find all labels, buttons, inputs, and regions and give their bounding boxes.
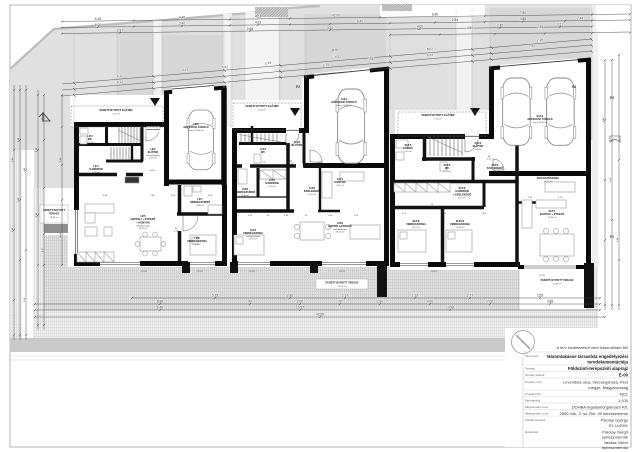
- svg-text:Projekt címe:: Projekt címe:: [525, 380, 543, 384]
- svg-text:9,74 m²: 9,74 m²: [249, 238, 257, 241]
- svg-text:4,20 m²: 4,20 m²: [268, 185, 276, 188]
- svg-text:Megrendelő címe:: Megrendelő címe:: [525, 412, 549, 416]
- svg-text:1,12: 1,12: [412, 294, 418, 298]
- svg-text:6,48: 6,48: [157, 306, 163, 310]
- svg-text:13,98: 13,98: [446, 306, 454, 310]
- svg-text:beton 19,96 m²: beton 19,96 m²: [337, 104, 352, 107]
- svg-text:2,19: 2,19: [265, 61, 272, 66]
- svg-text:6,43: 6,43: [427, 53, 434, 58]
- svg-text:+ KONYHA: + KONYHA: [136, 220, 150, 224]
- svg-text:17,80 m²: 17,80 m²: [548, 216, 557, 219]
- svg-text:F2: F2: [572, 85, 576, 89]
- svg-text:3,24: 3,24: [327, 26, 333, 30]
- svg-text:melegburkolat: melegburkolat: [136, 224, 150, 227]
- svg-text:3,40: 3,40: [179, 22, 185, 26]
- svg-text:6,40: 6,40: [357, 19, 363, 23]
- svg-text:38,37 m²: 38,37 m²: [139, 227, 148, 230]
- svg-text:18,88 m²: 18,88 m²: [50, 216, 59, 219]
- svg-text:7,32: 7,32: [529, 44, 536, 49]
- svg-text:melegburkolat: melegburkolat: [333, 228, 347, 231]
- svg-text:4,80 m²: 4,80 m²: [196, 204, 204, 207]
- svg-text:Méretarány:: Méretarány:: [525, 399, 541, 403]
- svg-text:2,17: 2,17: [342, 294, 348, 298]
- svg-text:3,21: 3,21: [557, 23, 563, 27]
- svg-text:Felelős tervező:: Felelős tervező:: [525, 418, 546, 422]
- svg-text:3,92: 3,92: [369, 57, 376, 62]
- svg-text:KONYHA: KONYHA: [334, 180, 345, 184]
- svg-text:4,03: 4,03: [255, 21, 261, 25]
- svg-text:2,97: 2,97: [117, 29, 123, 33]
- svg-text:FEDETT-NYITOTT TERASZ: FEDETT-NYITOTT TERASZ: [326, 281, 359, 285]
- svg-text:42,00: 42,00: [332, 14, 340, 18]
- svg-text:2,84: 2,84: [452, 18, 458, 22]
- svg-text:Építészek:: Építészek:: [525, 429, 539, 434]
- svg-text:melegburkolat: melegburkolat: [146, 154, 160, 157]
- svg-text:4,00: 4,00: [427, 300, 433, 304]
- svg-text:2600 Vác, 2. sz. Rkt. 50 keres: 2600 Vác, 2. sz. Rkt. 50 kereskedelme: [560, 411, 629, 416]
- svg-text:A terv kivitelezésre nem haszn: A terv kivitelezésre nem használható fel…: [556, 345, 629, 350]
- svg-text:6,13: 6,13: [117, 80, 124, 85]
- svg-text:építészmérnök: építészmérnök: [602, 435, 628, 440]
- svg-text:4,42: 4,42: [222, 65, 229, 70]
- svg-text:7,22 m²: 7,22 m²: [112, 113, 120, 116]
- svg-text:5,61 m²: 5,61 m²: [404, 150, 412, 153]
- svg-text:10,57: 10,57: [296, 306, 304, 310]
- svg-text:8,11 m²: 8,11 m²: [336, 184, 344, 187]
- svg-text:±0,00: ±0,00: [149, 170, 155, 172]
- svg-text:10,01 m²: 10,01 m²: [544, 180, 553, 183]
- svg-text:24,55 m²: 24,55 m²: [338, 285, 347, 288]
- svg-text:7,58 m²: 7,58 m²: [434, 118, 442, 121]
- svg-text:Tervlap:: Tervlap:: [525, 367, 536, 371]
- svg-text:0,68: 0,68: [247, 27, 253, 31]
- svg-text:2,44: 2,44: [577, 17, 583, 21]
- svg-text:DOHBA Ingatlanforgalmazó Kft.: DOHBA Ingatlanforgalmazó Kft.: [572, 405, 628, 410]
- svg-text:4,03: 4,03: [255, 15, 261, 19]
- svg-text:5,25: 5,25: [212, 294, 218, 298]
- svg-text:Palotay György: Palotay György: [601, 418, 628, 423]
- svg-text:Levendula utca, Veresegyháza,: Levendula utca, Veresegyháza, Pest: [563, 380, 629, 385]
- svg-text:87,78: 87,78: [197, 271, 203, 273]
- svg-text:90: 90: [248, 300, 252, 304]
- svg-text:4,95 m²: 4,95 m²: [474, 148, 482, 151]
- svg-text:2,45: 2,45: [497, 24, 503, 28]
- svg-text:8,27 m²: 8,27 m²: [458, 196, 466, 199]
- svg-text:4,40: 4,40: [179, 16, 185, 20]
- svg-text:2,00: 2,00: [297, 300, 303, 304]
- svg-text:8,62: 8,62: [427, 47, 434, 52]
- svg-text:87,78: 87,78: [249, 271, 255, 273]
- svg-text:4,80: 4,80: [467, 26, 473, 30]
- svg-text:tervdokumentációja: tervdokumentációja: [587, 360, 628, 365]
- svg-text:12,17 m²: 12,17 m²: [412, 226, 421, 229]
- svg-text:16,38 m²: 16,38 m²: [553, 283, 562, 286]
- svg-text:8,88: 8,88: [157, 300, 163, 304]
- svg-text:6,40: 6,40: [432, 12, 438, 16]
- svg-text:É1 U-0091: É1 U-0091: [609, 423, 629, 428]
- svg-text:2,45: 2,45: [537, 25, 543, 29]
- svg-text:87,78: 87,78: [431, 271, 437, 273]
- svg-text:3,17: 3,17: [182, 68, 189, 73]
- svg-text:2,90: 2,90: [377, 300, 383, 304]
- svg-text:34,82: 34,82: [331, 48, 340, 53]
- svg-text:4,52: 4,52: [335, 55, 342, 60]
- svg-text:1,72 m²: 1,72 m²: [86, 141, 94, 144]
- svg-text:4,88: 4,88: [547, 300, 553, 304]
- svg-text:2,55: 2,55: [537, 294, 543, 298]
- svg-text:8,18 m²: 8,18 m²: [193, 243, 201, 246]
- svg-text:6,92 m²: 6,92 m²: [92, 171, 100, 174]
- svg-text:1,77 m²: 1,77 m²: [443, 170, 451, 173]
- svg-text:melegburkolat: melegburkolat: [246, 235, 260, 238]
- svg-text:12,06 m²: 12,06 m²: [456, 226, 465, 229]
- svg-text:beton 20,04 m²: beton 20,04 m²: [189, 129, 204, 132]
- svg-text:±0,00: ±0,00: [497, 173, 503, 175]
- svg-text:WC: WC: [88, 137, 92, 141]
- svg-text:FEDETT-NYITOTT TERASZ: FEDETT-NYITOTT TERASZ: [541, 278, 574, 282]
- svg-text:6,12: 6,12: [117, 74, 124, 79]
- svg-text:2,77: 2,77: [467, 294, 473, 298]
- svg-text:Háromlakásos társasház engedél: Háromlakásos társasház engedélyezési: [547, 354, 628, 359]
- svg-text:87,78: 87,78: [141, 271, 147, 273]
- svg-text:7,80: 7,80: [520, 11, 526, 15]
- svg-text:Megrendelő neve:: Megrendelő neve:: [525, 405, 549, 409]
- svg-text:±0,00: ±0,00: [317, 162, 323, 164]
- svg-text:4811: 4811: [619, 392, 628, 397]
- svg-text:2,75: 2,75: [323, 63, 330, 68]
- svg-text:beton 33,01 m²: beton 33,01 m²: [533, 121, 548, 124]
- svg-text:megye, Magyarország: megye, Magyarország: [588, 385, 628, 390]
- svg-text:6,00: 6,00: [95, 23, 101, 27]
- svg-text:2,85: 2,85: [287, 294, 293, 298]
- svg-text:Terv neve:: Terv neve:: [525, 354, 539, 358]
- svg-text:20: 20: [338, 300, 342, 304]
- svg-text:Földszinti-terepszinti alapraj: Földszinti-terepszinti alaprajz: [568, 366, 628, 371]
- svg-text:6,27 m²: 6,27 m²: [308, 193, 316, 196]
- svg-text:6,79 m²: 6,79 m²: [149, 157, 157, 160]
- svg-text:Tervlap száma:: Tervlap száma:: [525, 373, 545, 377]
- svg-text:87,78: 87,78: [339, 271, 345, 273]
- svg-text:TERASZ: TERASZ: [49, 212, 60, 216]
- svg-text:28,12 m²: 28,12 m²: [336, 231, 345, 234]
- svg-text:5,06 m²: 5,06 m²: [241, 194, 249, 197]
- svg-text:3,88: 3,88: [520, 17, 526, 21]
- svg-text:7,00: 7,00: [487, 300, 493, 304]
- svg-text:2,19: 2,19: [537, 38, 544, 43]
- svg-text:F2: F2: [296, 85, 300, 89]
- svg-text:3,04 m²: 3,04 m²: [258, 109, 266, 112]
- svg-text:WC: WC: [261, 150, 265, 154]
- svg-text:WC: WC: [445, 166, 449, 170]
- svg-text:építészmérnök: építészmérnök: [602, 445, 628, 450]
- svg-text:6,16: 6,16: [95, 17, 101, 21]
- svg-text:Projekt hrsz:: Projekt hrsz:: [525, 392, 542, 396]
- svg-text:1:100: 1:100: [618, 398, 629, 403]
- svg-text:43,66: 43,66: [316, 313, 324, 317]
- svg-text:É-00: É-00: [619, 373, 629, 378]
